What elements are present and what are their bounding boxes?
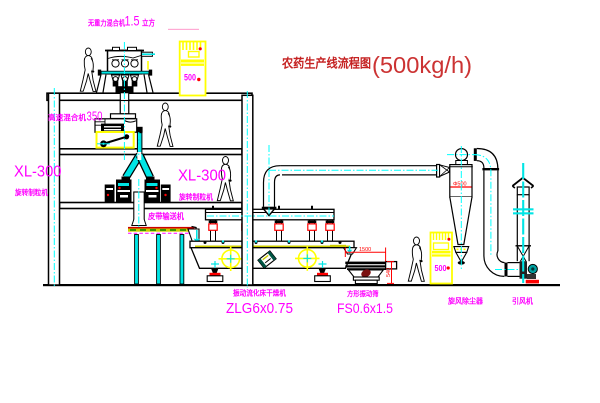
svg-text:500: 500	[435, 263, 447, 273]
svg-text:XL-300: XL-300	[14, 164, 62, 181]
svg-text:立方: 立方	[142, 18, 155, 28]
svg-text:ZLG6x0.75: ZLG6x0.75	[226, 301, 293, 317]
svg-text:旋转制粒机: 旋转制粒机	[178, 192, 213, 202]
svg-text:500: 500	[184, 73, 196, 83]
svg-text:引风机: 引风机	[512, 296, 533, 306]
svg-text:农药生产线流程图: 农药生产线流程图	[281, 56, 371, 71]
svg-text:高速混合机: 高速混合机	[48, 112, 87, 122]
svg-text:无重力混合机: 无重力混合机	[87, 18, 125, 28]
svg-text:旋风除尘器: 旋风除尘器	[447, 296, 483, 306]
svg-text:XL-300: XL-300	[178, 168, 226, 185]
svg-text:1.5: 1.5	[125, 14, 140, 29]
svg-text:方形振动筛: 方形振动筛	[347, 289, 379, 298]
svg-text:Φ500: Φ500	[453, 182, 467, 188]
svg-text:振动流化床干燥机: 振动流化床干燥机	[233, 288, 286, 298]
svg-text:350: 350	[87, 110, 103, 124]
svg-text:540: 540	[386, 268, 392, 277]
svg-text:(500kg/h): (500kg/h)	[372, 52, 472, 78]
svg-text:旋转制粒机: 旋转制粒机	[14, 187, 48, 197]
svg-text:皮带输送机: 皮带输送机	[147, 211, 184, 221]
svg-text:FS0.6x1.5: FS0.6x1.5	[337, 301, 393, 316]
svg-text:1500: 1500	[359, 247, 371, 253]
